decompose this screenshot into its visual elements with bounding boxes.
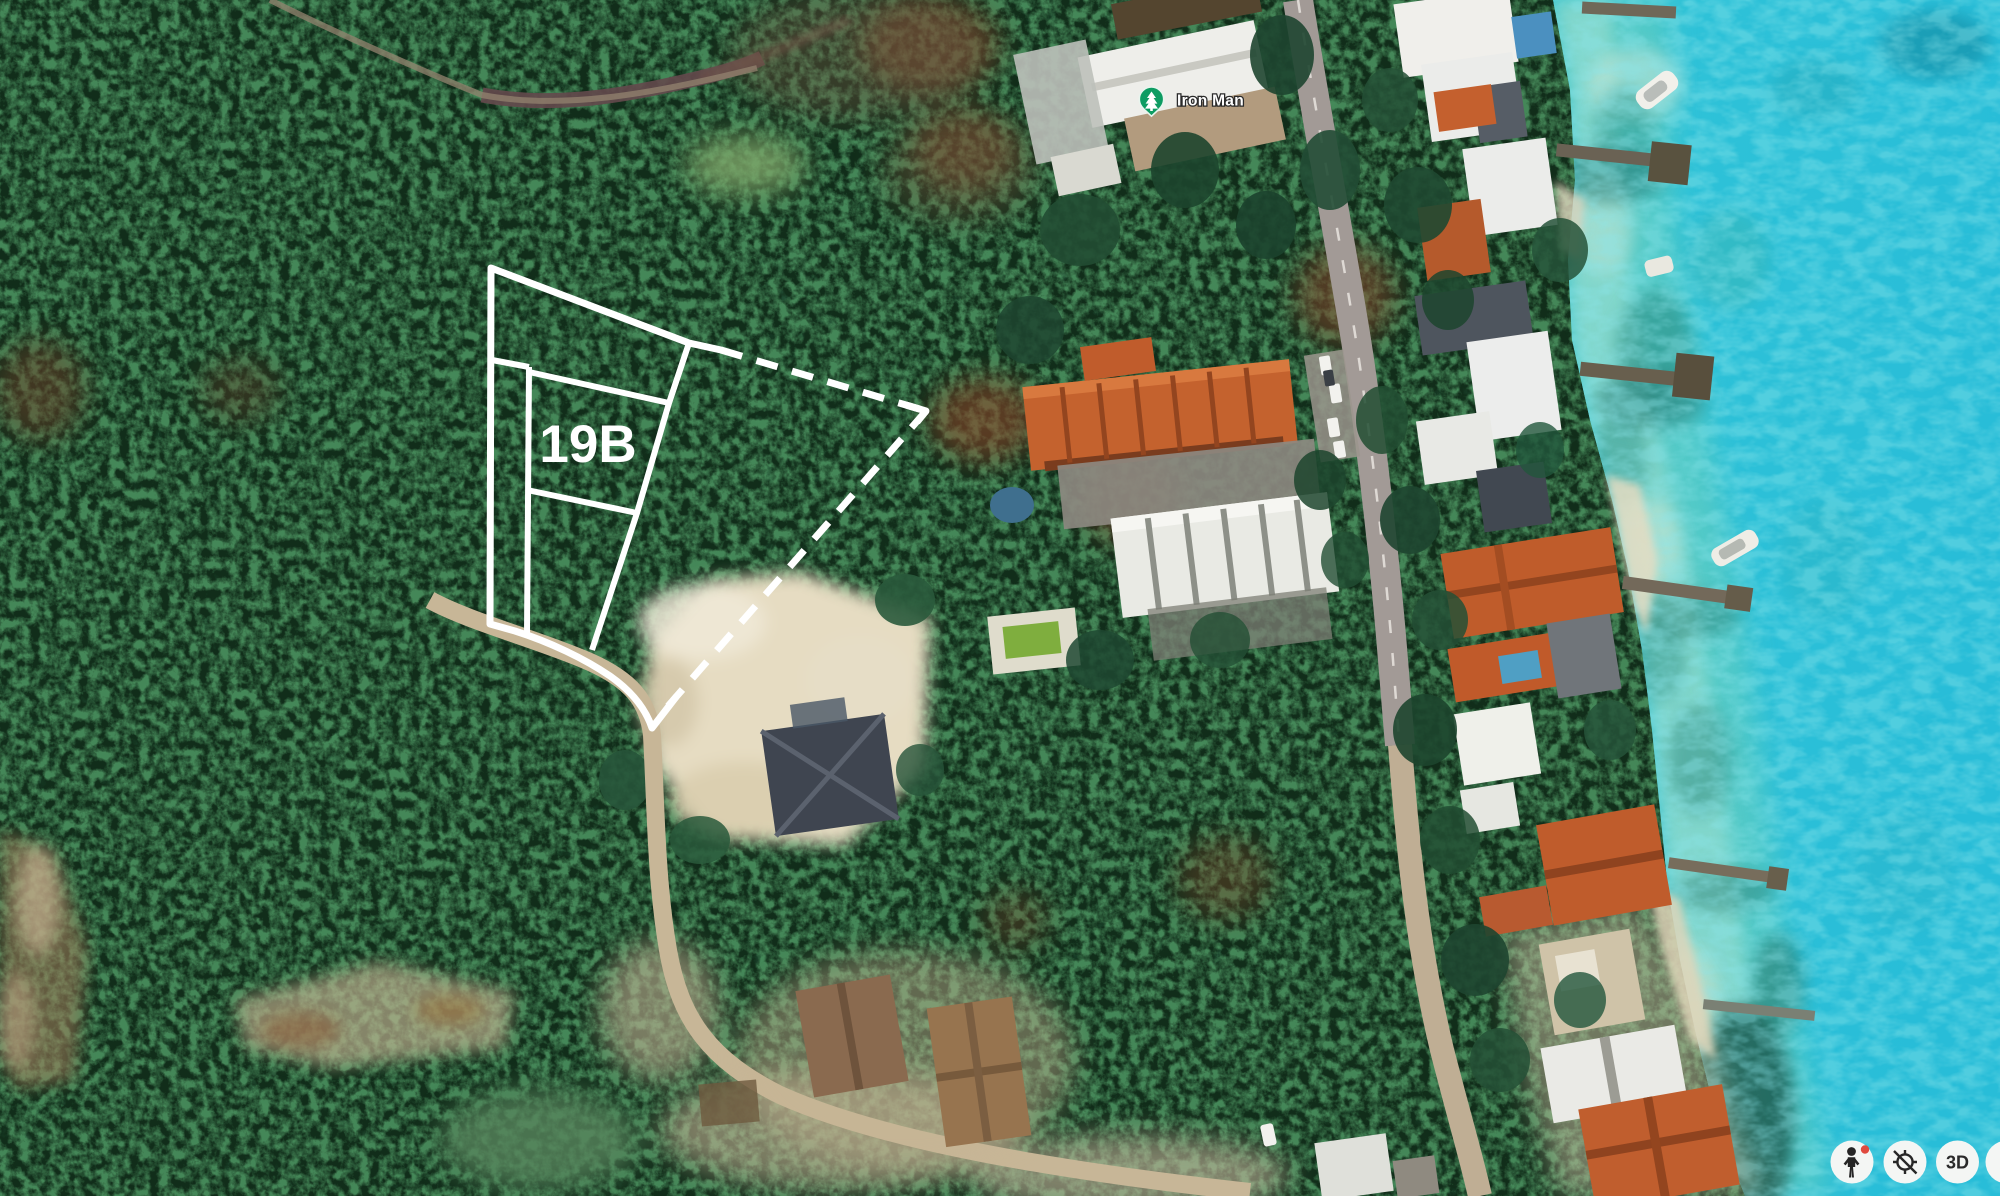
svg-text:Iron Man: Iron Man — [1177, 93, 1244, 110]
svg-text:3D: 3D — [1946, 1153, 1969, 1173]
svg-text:19B: 19B — [539, 415, 636, 474]
